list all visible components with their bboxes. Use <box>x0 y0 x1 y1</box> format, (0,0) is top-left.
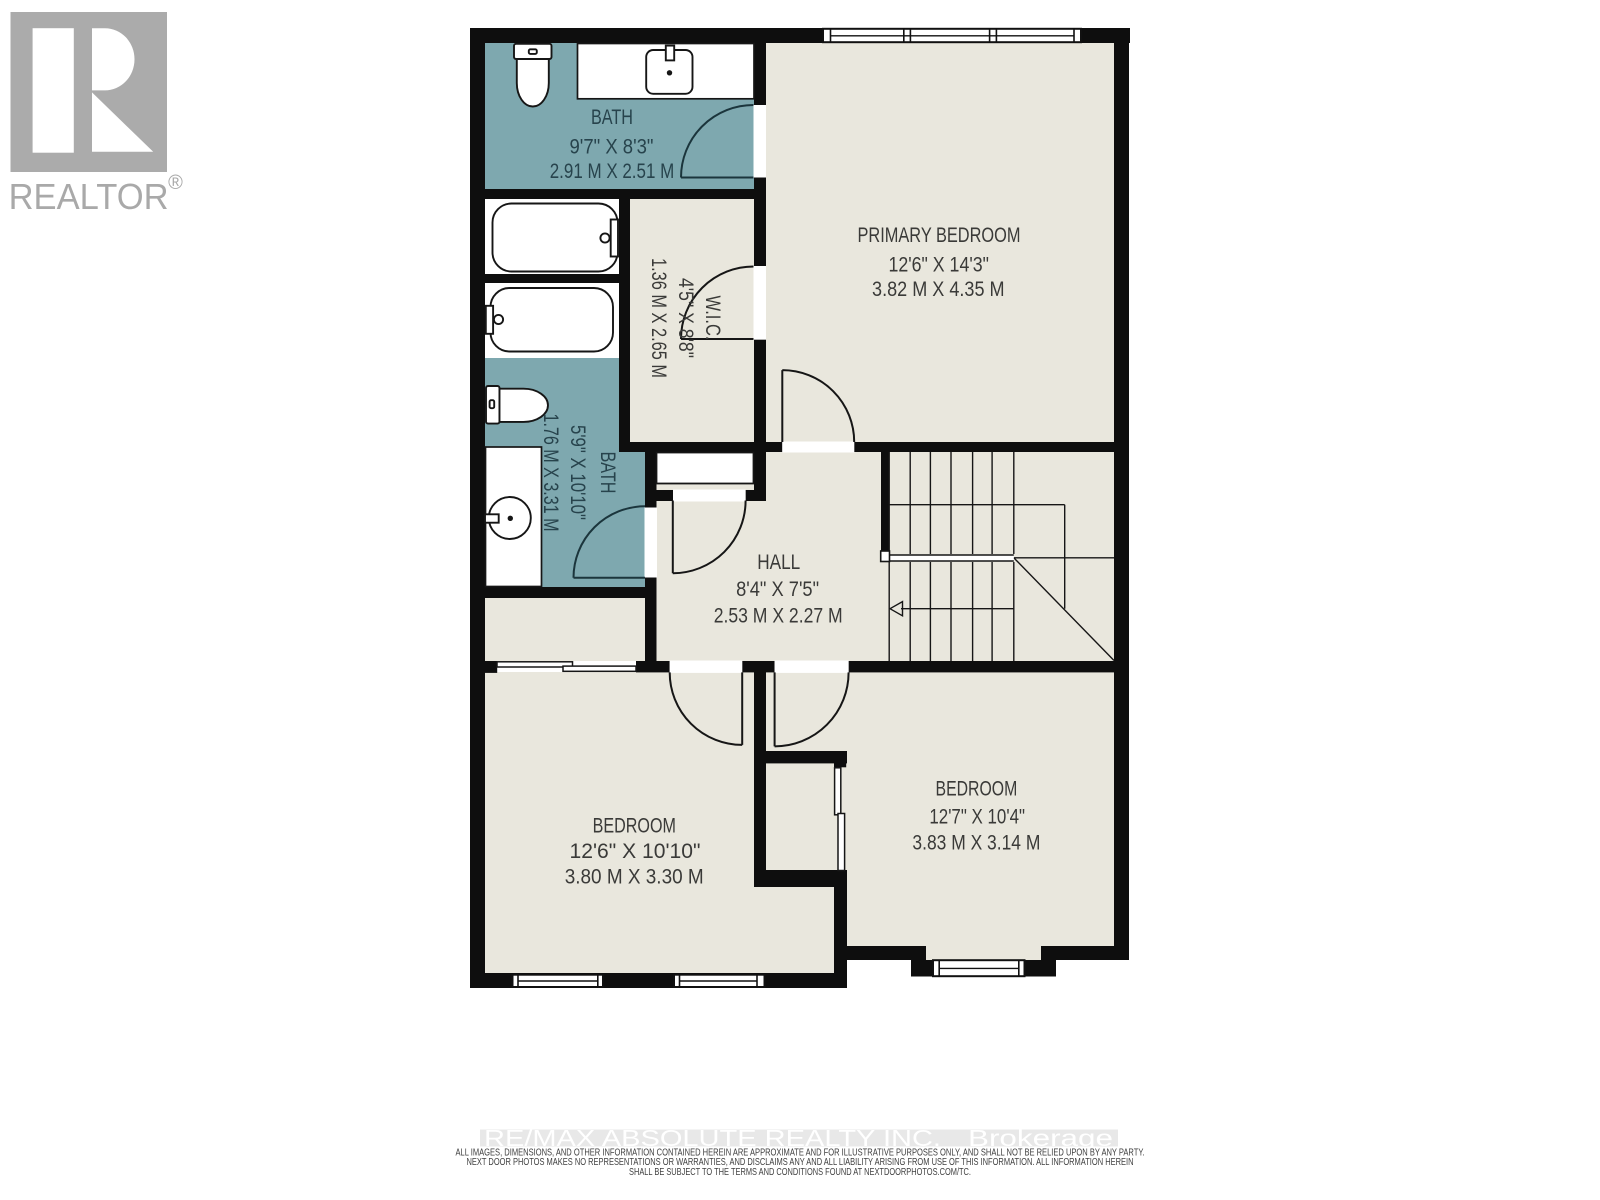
svg-text:3.82 M X 4.35 M: 3.82 M X 4.35 M <box>872 278 1005 301</box>
svg-text:®: ® <box>168 172 183 194</box>
svg-text:BATH: BATH <box>591 106 633 129</box>
svg-text:12'7" X 10'4": 12'7" X 10'4" <box>929 805 1025 828</box>
svg-text:4'5" X 8'8": 4'5" X 8'8" <box>674 278 697 358</box>
svg-text:REALTOR: REALTOR <box>9 176 169 217</box>
svg-text:HALL: HALL <box>757 551 800 574</box>
svg-text:1.36 M X 2.65 M: 1.36 M X 2.65 M <box>647 258 670 378</box>
svg-text:3.83 M X 3.14 M: 3.83 M X 3.14 M <box>912 832 1040 855</box>
svg-text:BATH: BATH <box>596 452 619 494</box>
svg-text:12'6" X 10'10": 12'6" X 10'10" <box>570 840 701 863</box>
svg-text:2.53 M X 2.27 M: 2.53 M X 2.27 M <box>714 605 843 628</box>
svg-text:BEDROOM: BEDROOM <box>593 815 676 838</box>
svg-text:PRIMARY BEDROOM: PRIMARY BEDROOM <box>858 224 1021 247</box>
svg-text:8'4" X 7'5": 8'4" X 7'5" <box>736 578 819 601</box>
svg-text:5'9" X 10'10": 5'9" X 10'10" <box>566 425 589 520</box>
svg-text:BEDROOM: BEDROOM <box>936 778 1018 801</box>
svg-text:W.I.C.: W.I.C. <box>701 296 724 341</box>
svg-text:9'7" X 8'3": 9'7" X 8'3" <box>570 136 654 159</box>
svg-text:12'6" X 14'3": 12'6" X 14'3" <box>888 254 989 277</box>
svg-text:2.91 M X 2.51 M: 2.91 M X 2.51 M <box>550 160 675 183</box>
svg-text:1.76 M X 3.31 M: 1.76 M X 3.31 M <box>539 414 562 532</box>
svg-text:3.80 M X 3.30 M: 3.80 M X 3.30 M <box>565 866 704 889</box>
svg-text:SHALL BE SUBJECT TO THE TERMS: SHALL BE SUBJECT TO THE TERMS AND CONDIT… <box>629 1167 971 1178</box>
